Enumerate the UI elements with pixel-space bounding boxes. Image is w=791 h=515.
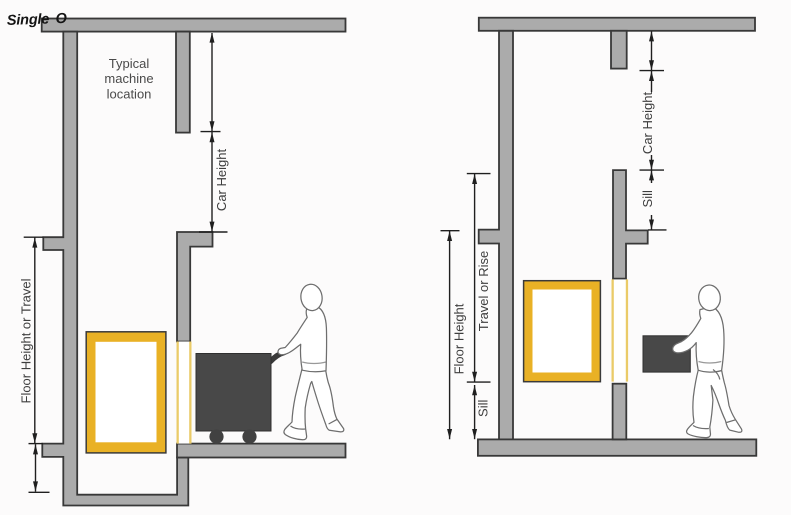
- svg-text:Sill: Sill: [640, 190, 655, 207]
- svg-text:Floor Height or Travel: Floor Height or Travel: [18, 278, 33, 403]
- svg-text:Floor Height: Floor Height: [452, 303, 467, 374]
- svg-text:Sill: Sill: [476, 400, 491, 417]
- svg-text:location: location: [107, 86, 152, 101]
- svg-text:Travel or Rise: Travel or Rise: [476, 251, 491, 331]
- svg-text:Single O: Single O: [7, 11, 68, 29]
- svg-text:machine: machine: [104, 71, 153, 86]
- svg-text:Car Height: Car Height: [640, 92, 655, 155]
- svg-text:Car Height: Car Height: [214, 149, 229, 212]
- svg-text:Typical: Typical: [109, 56, 150, 71]
